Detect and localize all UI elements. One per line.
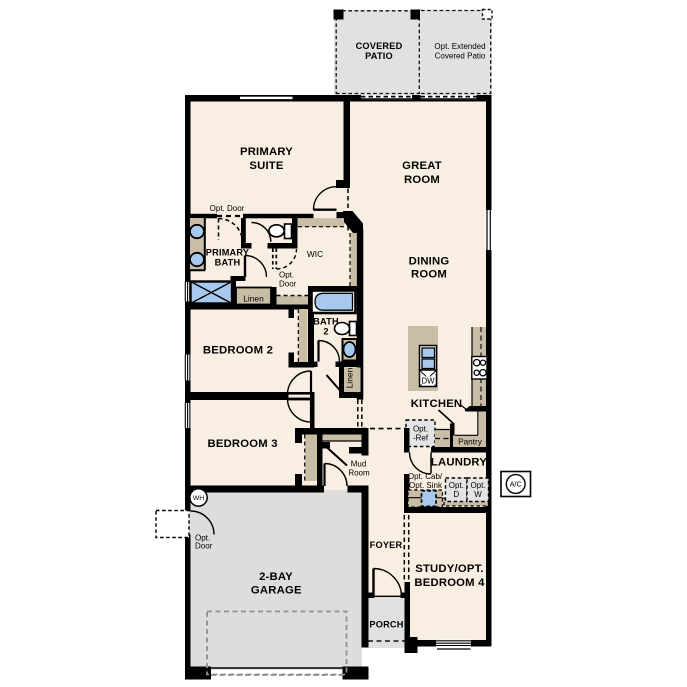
svg-text:ROOM: ROOM <box>404 174 440 186</box>
svg-text:Opt. Door: Opt. Door <box>210 204 245 213</box>
svg-text:BEDROOM 4: BEDROOM 4 <box>414 577 485 589</box>
svg-text:2: 2 <box>323 327 328 337</box>
svg-text:2-BAY: 2-BAY <box>259 571 293 583</box>
svg-text:Opt.: Opt. <box>449 481 464 490</box>
svg-text:PORCH: PORCH <box>369 620 403 630</box>
svg-text:Door: Door <box>279 280 297 289</box>
svg-text:-Ref: -Ref <box>413 434 429 443</box>
svg-text:Opt. Cab/: Opt. Cab/ <box>408 472 443 481</box>
svg-text:FOYER: FOYER <box>370 540 403 550</box>
svg-text:DW: DW <box>422 377 436 386</box>
svg-text:Opt. Extended: Opt. Extended <box>434 42 485 51</box>
svg-text:DINING: DINING <box>409 255 450 267</box>
svg-text:Linen: Linen <box>345 367 355 388</box>
svg-text:ROOM: ROOM <box>411 269 447 281</box>
svg-text:LAUNDRY: LAUNDRY <box>431 457 487 469</box>
svg-text:BEDROOM 2: BEDROOM 2 <box>203 345 273 357</box>
svg-text:GARAGE: GARAGE <box>251 585 302 597</box>
svg-text:SUITE: SUITE <box>249 160 284 172</box>
svg-text:STUDY/OPT.: STUDY/OPT. <box>415 563 484 575</box>
svg-text:Pantry: Pantry <box>458 437 483 446</box>
svg-text:Room: Room <box>348 469 370 478</box>
svg-text:BATH: BATH <box>215 258 241 268</box>
svg-text:Door: Door <box>195 542 213 551</box>
svg-text:D: D <box>453 490 459 499</box>
svg-text:Opt.: Opt. <box>413 425 428 434</box>
svg-text:PRIMARY: PRIMARY <box>240 146 293 158</box>
svg-text:WIC: WIC <box>307 249 323 259</box>
svg-text:BEDROOM 3: BEDROOM 3 <box>207 438 277 450</box>
svg-text:PRIMARY: PRIMARY <box>206 248 249 258</box>
svg-text:A/C: A/C <box>510 480 522 489</box>
svg-text:Linen: Linen <box>243 294 264 304</box>
svg-text:Mud: Mud <box>351 460 367 469</box>
svg-text:COVERED: COVERED <box>356 41 403 51</box>
svg-text:Opt. Sink: Opt. Sink <box>409 481 443 490</box>
svg-text:PATIO: PATIO <box>365 51 393 61</box>
svg-text:KITCHEN: KITCHEN <box>411 398 463 410</box>
svg-text:WH: WH <box>193 495 204 502</box>
svg-text:Opt.: Opt. <box>470 481 485 490</box>
svg-text:W: W <box>474 490 482 499</box>
svg-text:Covered Patio: Covered Patio <box>435 51 486 60</box>
svg-text:GREAT: GREAT <box>402 160 442 172</box>
svg-text:Opt.: Opt. <box>279 271 294 280</box>
